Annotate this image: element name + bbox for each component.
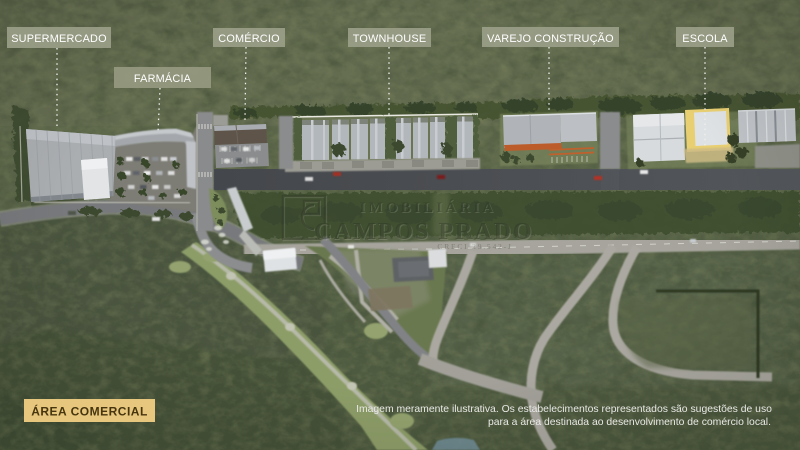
svg-text:TOWNHOUSE: TOWNHOUSE — [353, 33, 427, 45]
svg-text:Imagem meramente ilustrativa.: Imagem meramente ilustrativa. Os estabel… — [356, 404, 772, 415]
svg-text:ESCOLA: ESCOLA — [682, 33, 728, 45]
svg-text:IMOBILIÁRIA: IMOBILIÁRIA — [360, 199, 497, 216]
svg-text:ÁREA COMERCIAL: ÁREA COMERCIAL — [31, 404, 148, 419]
svg-text:VAREJO CONSTRUÇÃO: VAREJO CONSTRUÇÃO — [487, 32, 614, 45]
svg-text:SUPERMERCADO: SUPERMERCADO — [11, 33, 107, 45]
svg-text:para a área destinada ao desen: para a área destinada ao desenvolvimento… — [488, 417, 771, 428]
svg-text:FARMÁCIA: FARMÁCIA — [134, 72, 192, 85]
svg-text:COMÉRCIO: COMÉRCIO — [218, 32, 280, 45]
svg-text:CRECI 29.542-J: CRECI 29.542-J — [437, 242, 512, 251]
